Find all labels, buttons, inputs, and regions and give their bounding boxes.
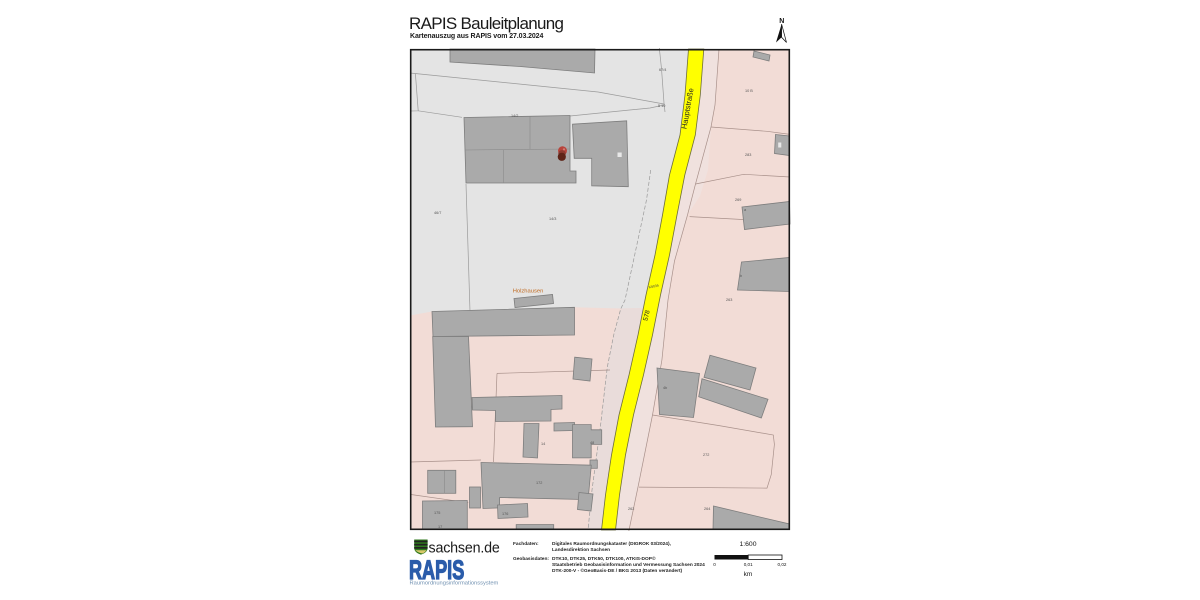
svg-text:14/3: 14/3 [549, 217, 556, 221]
svg-text:175: 175 [434, 511, 440, 515]
svg-text:17: 17 [438, 525, 442, 529]
svg-text:0,01: 0,01 [744, 562, 753, 567]
svg-text:14: 14 [541, 442, 545, 446]
svg-text:10 B: 10 B [745, 89, 753, 93]
svg-text:262: 262 [628, 507, 634, 511]
svg-text:176: 176 [502, 512, 508, 516]
svg-text:263: 263 [726, 298, 732, 302]
svg-text:4b: 4b [663, 386, 667, 390]
svg-text:14/2: 14/2 [511, 114, 518, 118]
svg-text:272: 272 [703, 453, 709, 457]
svg-text:km: km [744, 571, 753, 578]
svg-text:N: N [779, 18, 784, 25]
svg-text:Raumordnungsinformationssystem: Raumordnungsinformationssystem [410, 581, 499, 587]
svg-text:48: 48 [590, 441, 594, 445]
svg-text:264: 264 [704, 507, 710, 511]
svg-text:172: 172 [536, 481, 542, 485]
svg-text:269: 269 [735, 198, 741, 202]
svg-text:46/7: 46/7 [434, 211, 441, 215]
svg-text:0: 0 [713, 562, 716, 567]
svg-text:Holzhausen: Holzhausen [513, 289, 544, 295]
svg-text:5 10: 5 10 [658, 104, 665, 108]
svg-text:0,02: 0,02 [778, 562, 787, 567]
svg-text:b: b [740, 274, 742, 278]
svg-text:283: 283 [745, 153, 751, 157]
svg-text:67/4: 67/4 [659, 68, 666, 72]
